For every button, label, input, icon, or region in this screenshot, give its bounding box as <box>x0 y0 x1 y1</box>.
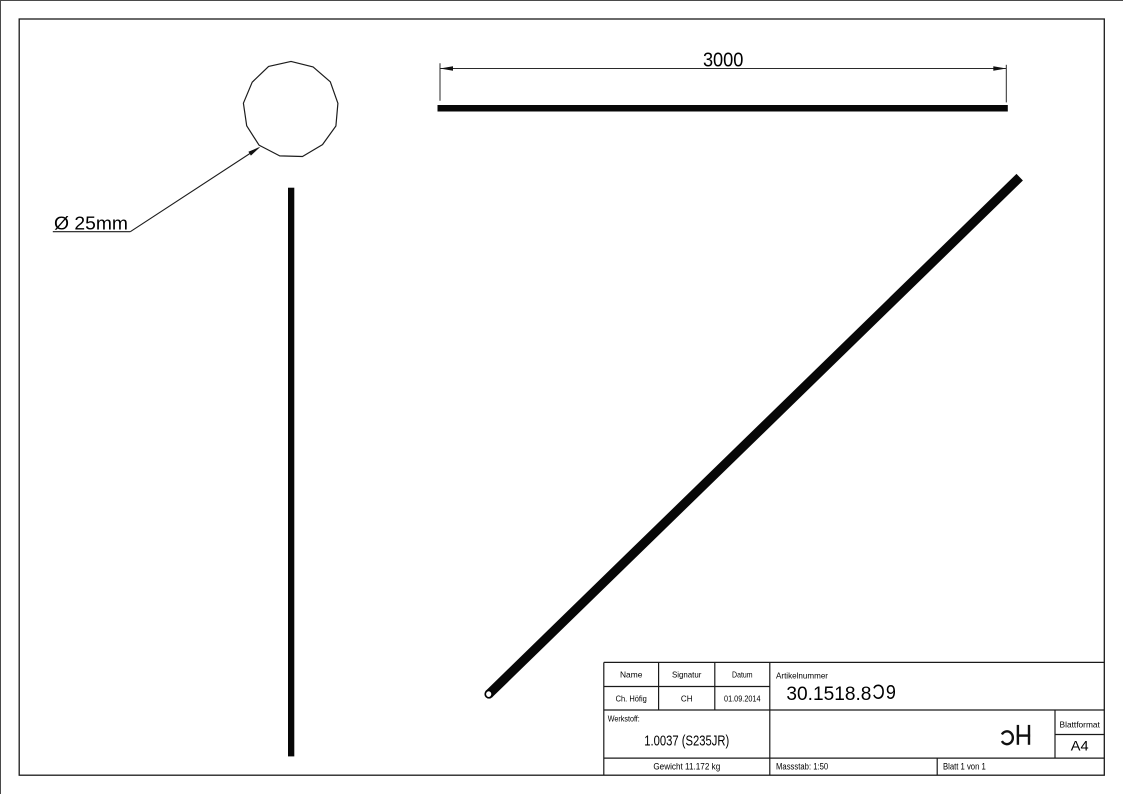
svg-text:Massstab: 1:50: Massstab: 1:50 <box>776 762 828 772</box>
svg-text:A4: A4 <box>1071 738 1089 754</box>
svg-text:CH: CH <box>681 693 693 703</box>
svg-text:3000: 3000 <box>703 50 744 72</box>
svg-text:C: C <box>873 681 885 704</box>
svg-text:Blattformat: Blattformat <box>1060 719 1101 729</box>
svg-text:Gewicht 11.172 kg: Gewicht 11.172 kg <box>653 762 720 772</box>
svg-text:30.1518.8: 30.1518.8 <box>786 684 871 705</box>
svg-text:Blatt 1 von 1: Blatt 1 von 1 <box>943 762 986 772</box>
svg-text:01.09.2014: 01.09.2014 <box>724 693 761 703</box>
svg-text:Artikelnummer: Artikelnummer <box>776 671 828 681</box>
svg-text:1.0037 (S235JR): 1.0037 (S235JR) <box>644 734 729 750</box>
svg-text:Werkstoff:: Werkstoff: <box>608 714 640 724</box>
svg-text:9: 9 <box>886 682 896 704</box>
svg-text:Ch. Höfig: Ch. Höfig <box>616 693 647 703</box>
svg-text:Datum: Datum <box>732 670 753 680</box>
svg-text:Ø 25mm: Ø 25mm <box>54 213 128 233</box>
svg-text:Name: Name <box>620 670 643 680</box>
svg-text:Signatur: Signatur <box>672 670 702 680</box>
